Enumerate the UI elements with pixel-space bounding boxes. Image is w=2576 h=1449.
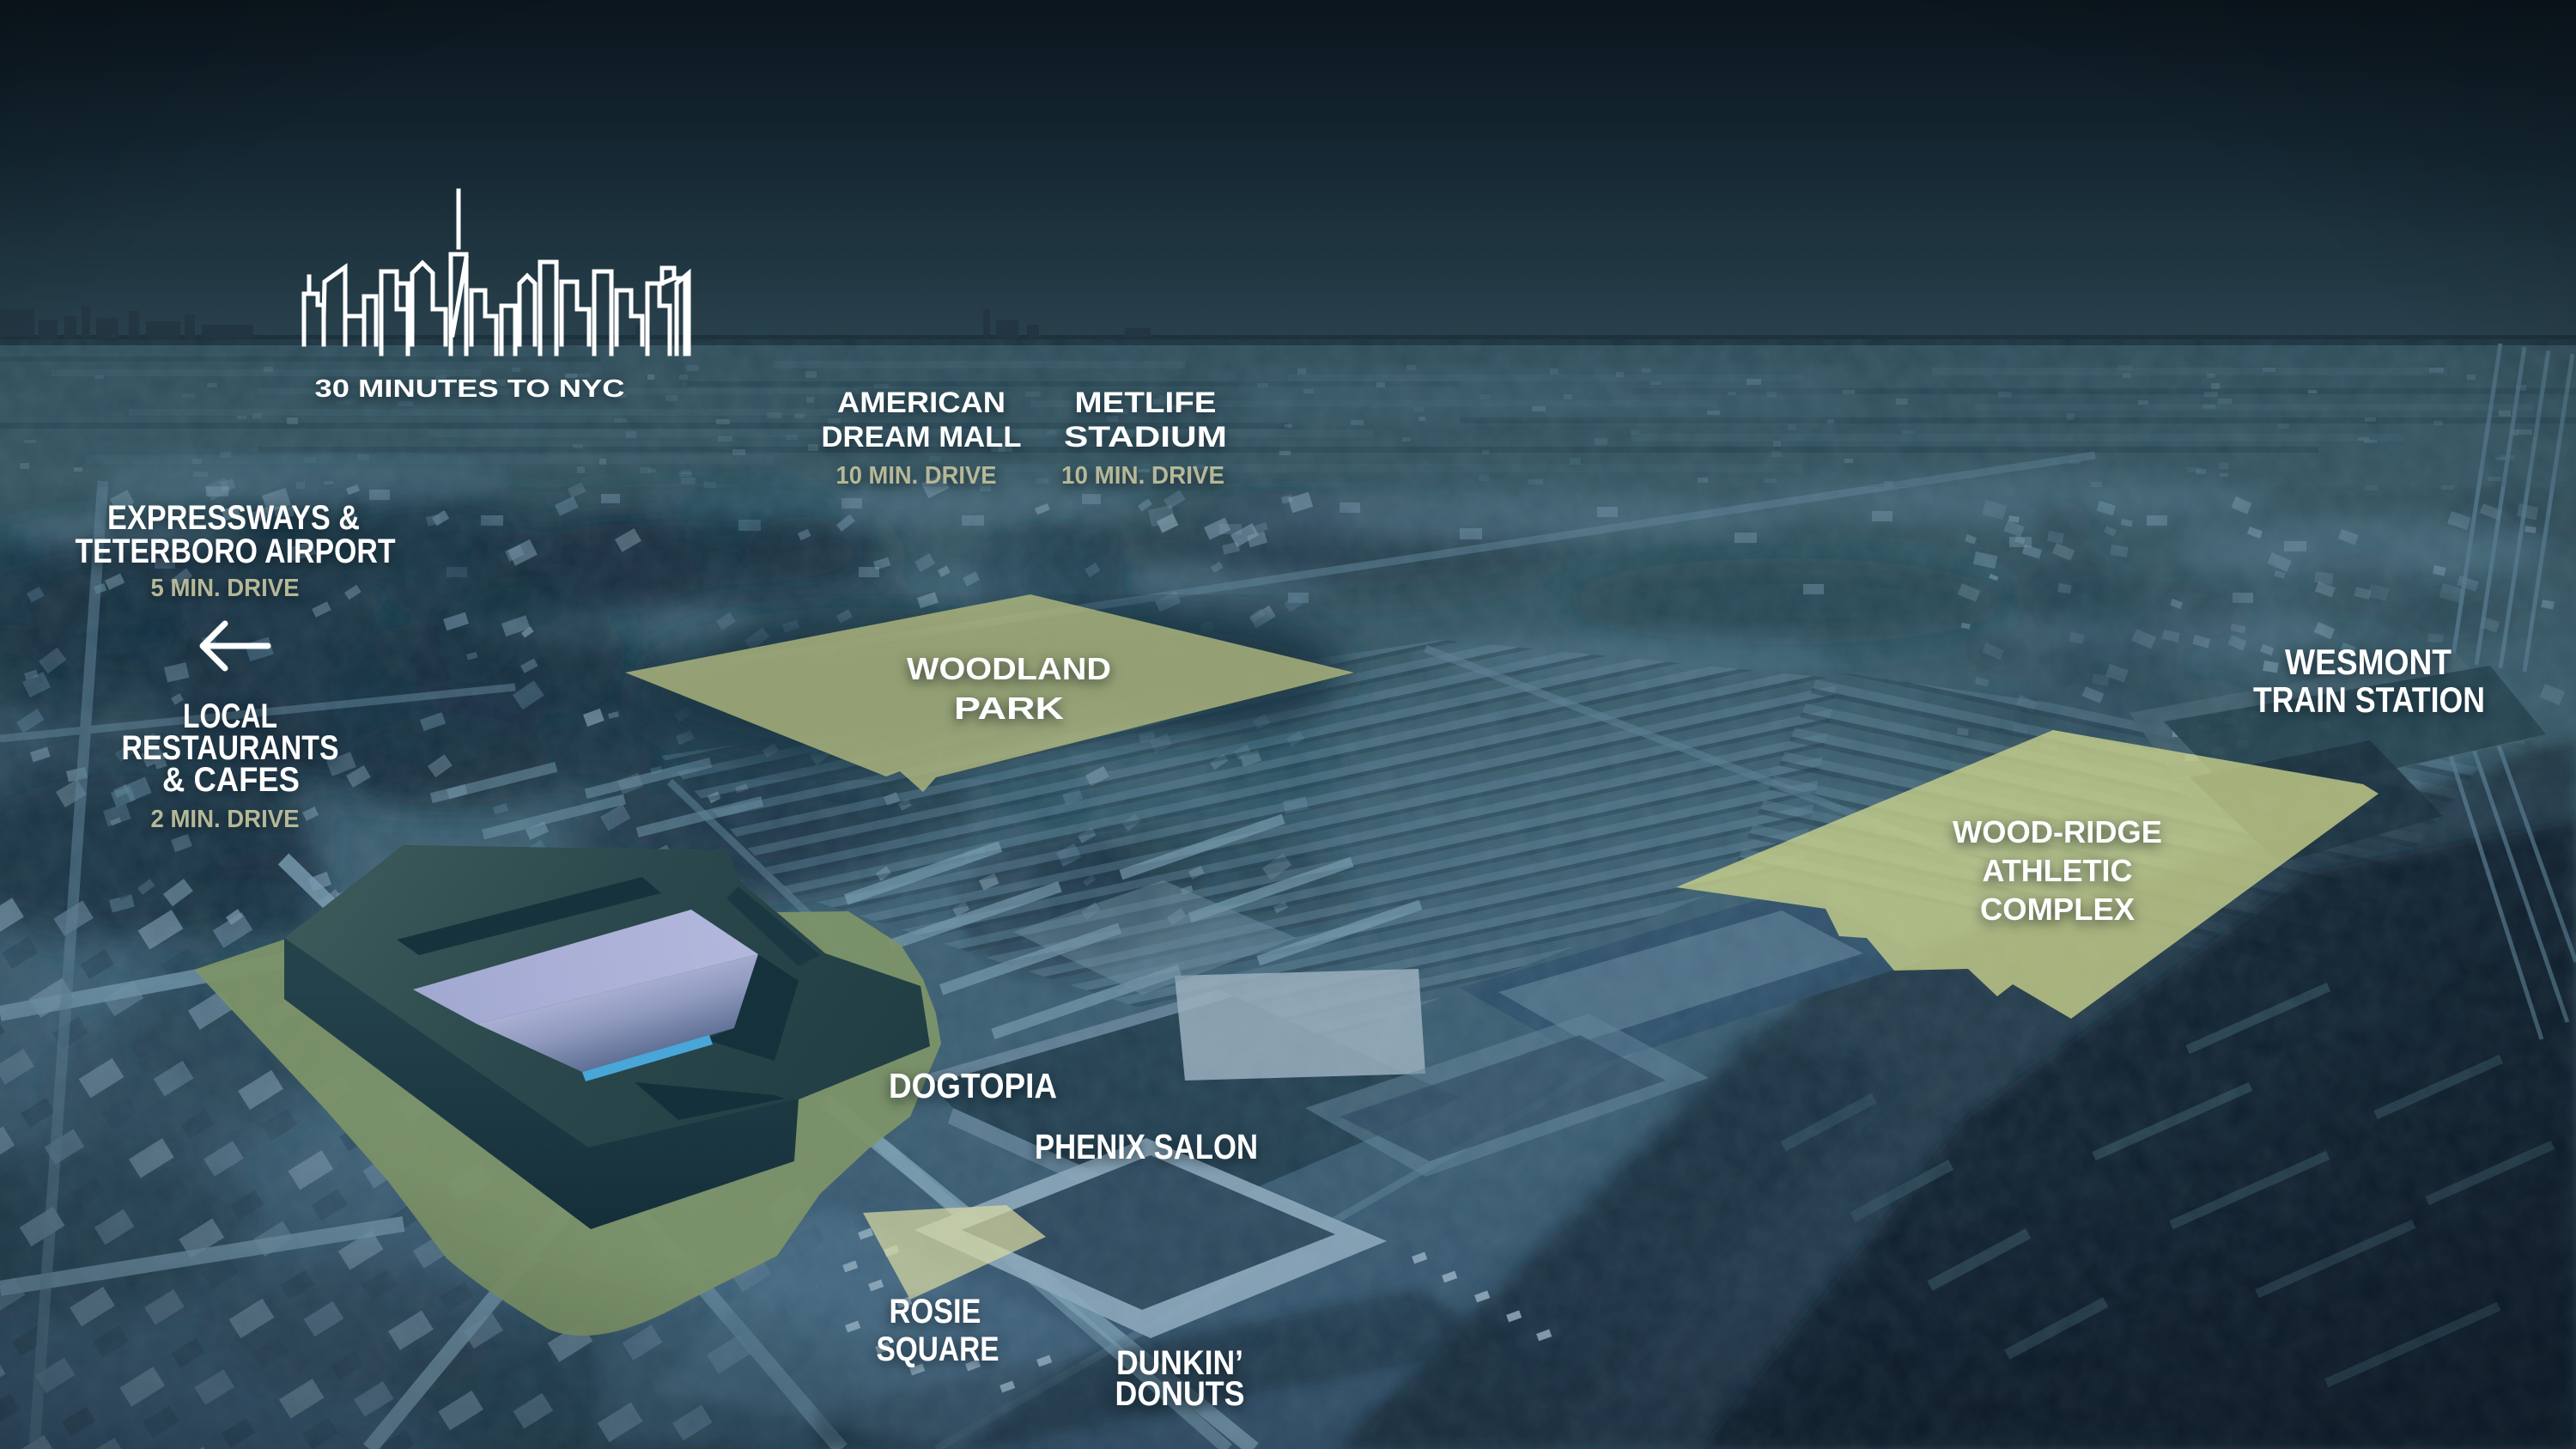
svg-text:5 MIN. DRIVE: 5 MIN. DRIVE — [151, 575, 300, 602]
svg-text:EXPRESSWAYS &: EXPRESSWAYS & — [107, 499, 360, 537]
svg-text:AMERICAN: AMERICAN — [837, 387, 1005, 419]
svg-text:DREAM MALL: DREAM MALL — [822, 421, 1022, 454]
svg-text:PARK: PARK — [954, 691, 1064, 726]
svg-text:ATHLETIC: ATHLETIC — [1983, 853, 2133, 888]
svg-text:DOGTOPIA: DOGTOPIA — [889, 1066, 1057, 1105]
svg-text:& CAFES: & CAFES — [162, 761, 300, 799]
svg-text:ROSIE: ROSIE — [890, 1293, 981, 1330]
svg-text:10 MIN. DRIVE: 10 MIN. DRIVE — [836, 462, 997, 490]
svg-text:WOODLAND: WOODLAND — [907, 651, 1111, 686]
svg-text:TRAIN STATION: TRAIN STATION — [2253, 679, 2485, 720]
svg-text:PHENIX SALON: PHENIX SALON — [1035, 1127, 1258, 1166]
svg-text:DONUTS: DONUTS — [1115, 1375, 1245, 1413]
svg-text:TETERBORO AIRPORT: TETERBORO AIRPORT — [76, 533, 396, 570]
svg-text:WOOD-RIDGE: WOOD-RIDGE — [1953, 814, 2162, 849]
svg-text:METLIFE: METLIFE — [1075, 387, 1217, 419]
svg-text:WESMONT: WESMONT — [2285, 642, 2451, 682]
svg-text:COMPLEX: COMPLEX — [1980, 892, 2135, 927]
svg-text:2 MIN. DRIVE: 2 MIN. DRIVE — [151, 806, 300, 833]
svg-text:30 MINUTES TO NYC: 30 MINUTES TO NYC — [315, 375, 625, 403]
svg-text:SQUARE: SQUARE — [877, 1330, 999, 1368]
svg-text:STADIUM: STADIUM — [1064, 421, 1227, 454]
svg-text:10 MIN. DRIVE: 10 MIN. DRIVE — [1061, 462, 1224, 490]
